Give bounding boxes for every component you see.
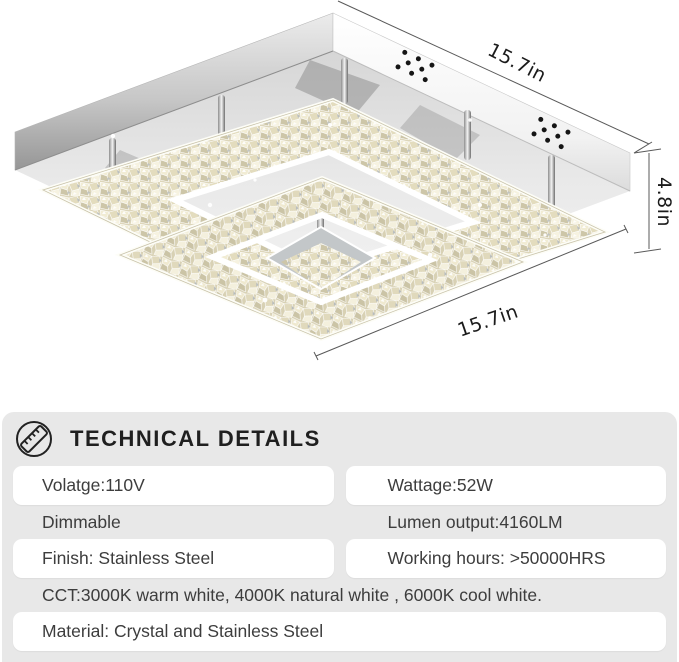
- ruler-icon: [15, 420, 53, 458]
- spec-list: Volatge:110V Wattage:52W Dimmable Lumen …: [2, 466, 677, 651]
- spec-dimmable: Dimmable: [13, 505, 334, 539]
- spec-working-hours: Working hours: >50000HRS: [346, 539, 667, 578]
- spec-finish: Finish: Stainless Steel: [13, 539, 334, 578]
- dimension-label-height: 4.8in: [653, 177, 675, 227]
- panel-title: TECHNICAL DETAILS: [70, 426, 321, 452]
- product-infographic: 15.7in 4.8in 15.7in TECHNICAL DETAILS Vo…: [0, 0, 679, 662]
- spec-lumen-output: Lumen output:4160LM: [346, 505, 667, 539]
- spec-voltage: Volatge:110V: [13, 466, 334, 505]
- panel-header: TECHNICAL DETAILS: [2, 412, 677, 466]
- technical-details-panel: TECHNICAL DETAILS Volatge:110V Wattage:5…: [2, 412, 677, 662]
- spec-cct: CCT:3000K warm white, 4000K natural whit…: [13, 578, 666, 612]
- spec-material: Material: Crystal and Stainless Steel: [13, 612, 666, 651]
- product-image-crystal-ceiling-light: [0, 0, 679, 412]
- spec-wattage: Wattage:52W: [346, 466, 667, 505]
